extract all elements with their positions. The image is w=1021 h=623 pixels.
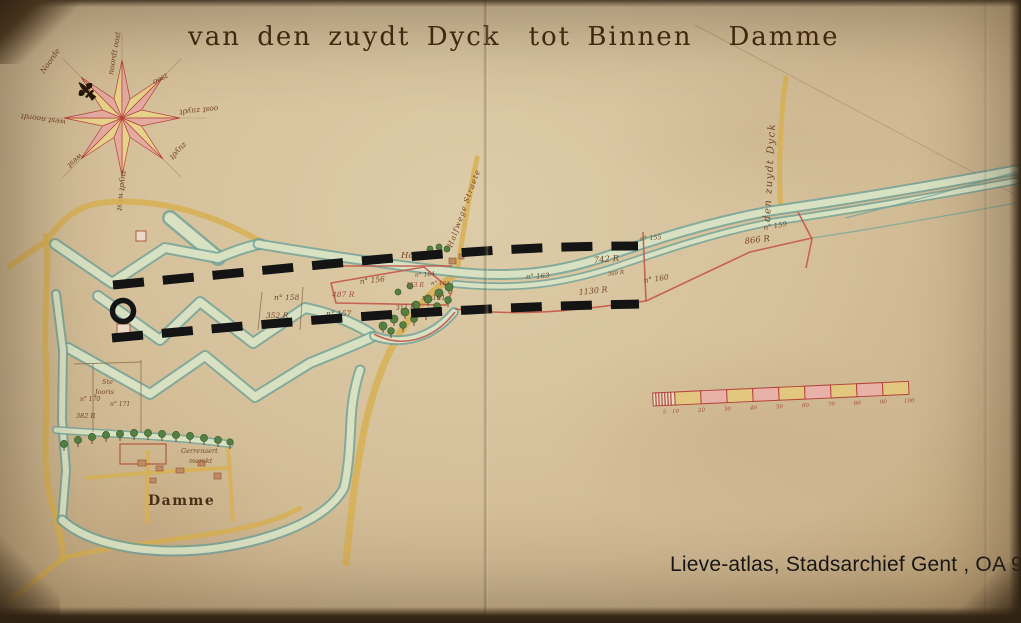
- compass-label-west: west: [65, 152, 85, 171]
- scale-bar: 5 10 20 30 40 50 60 70 80 90 100: [653, 381, 916, 416]
- map-artwork: Noorde noordt oost oost oost zuydt zuydt…: [0, 0, 1021, 623]
- area-label-382r: 382 R: [76, 412, 95, 420]
- parcel-label-n158: n° 158: [274, 293, 300, 302]
- parcel-label-n163: n° 163: [526, 272, 551, 281]
- map-title-part-2: tot Binnen: [529, 22, 693, 52]
- compass-label-oost-zuydt: oost zuydt: [178, 104, 219, 117]
- compass-label-noorde: Noorde: [38, 46, 63, 76]
- scale-tick: 30: [724, 406, 732, 412]
- sluice-gate: [136, 231, 146, 241]
- scale-tick: 10: [672, 409, 680, 415]
- map-title-part-3: Damme: [728, 22, 839, 52]
- area-label-487r: 487 R: [331, 290, 355, 299]
- parcel-label-n170: n° 170: [80, 396, 100, 403]
- compass-label-zuydt: zuydt: [167, 140, 190, 163]
- place-label-damme: Damme: [148, 493, 215, 509]
- area-label-153r: 153 R: [406, 282, 424, 289]
- compass-label-zuydt-west: zuydt west: [115, 169, 129, 213]
- place-label-merckt-2: merckt: [189, 457, 213, 465]
- parcel-label-n162: n° 162: [431, 281, 450, 287]
- area-label-866r: 866 R: [744, 234, 771, 247]
- map-title: van den zuydt Dyck tot Binnen Damme: [188, 22, 839, 52]
- scale-tick: 50: [776, 404, 784, 410]
- archive-caption: Lieve-atlas, Stadsarchief Gent , OA 98/1…: [670, 553, 1021, 577]
- scale-tick: 80: [854, 401, 862, 407]
- compass-rose: Noorde noordt oost oost oost zuydt zuydt…: [19, 30, 219, 213]
- place-label-jooris: Jooris: [93, 388, 115, 396]
- map-photo: Noorde noordt oost oost oost zuydt zuydt…: [0, 0, 1021, 623]
- parcel-label-n161: n° 161: [422, 294, 446, 302]
- annotations-marker: [112, 246, 639, 338]
- scale-tick: 70: [828, 402, 836, 408]
- scale-tick: 40: [749, 405, 758, 411]
- scale-tick: 90: [880, 399, 888, 405]
- area-label-369r: 369 R: [607, 270, 624, 278]
- parcel-label-n164: n° 164: [415, 271, 436, 279]
- parcel-label-n160: n° 160: [643, 273, 670, 285]
- area-label-1130r: 1130 R: [578, 285, 608, 297]
- scale-tick: 100: [904, 398, 915, 404]
- parcel-label-n156: n° 156: [359, 274, 385, 286]
- place-label-merckt-1: Gerrenaert: [181, 447, 218, 455]
- place-label-ste: Ste: [102, 378, 113, 386]
- parcel-label-n171: n° 171: [110, 401, 130, 408]
- scale-tick: 5: [663, 409, 667, 415]
- scale-tick: 20: [697, 408, 706, 414]
- compass-label-west-noordt: west noordt: [19, 112, 66, 127]
- map-title-part-1: van den zuydt Dyck: [188, 22, 501, 52]
- scale-tick: 60: [802, 403, 810, 409]
